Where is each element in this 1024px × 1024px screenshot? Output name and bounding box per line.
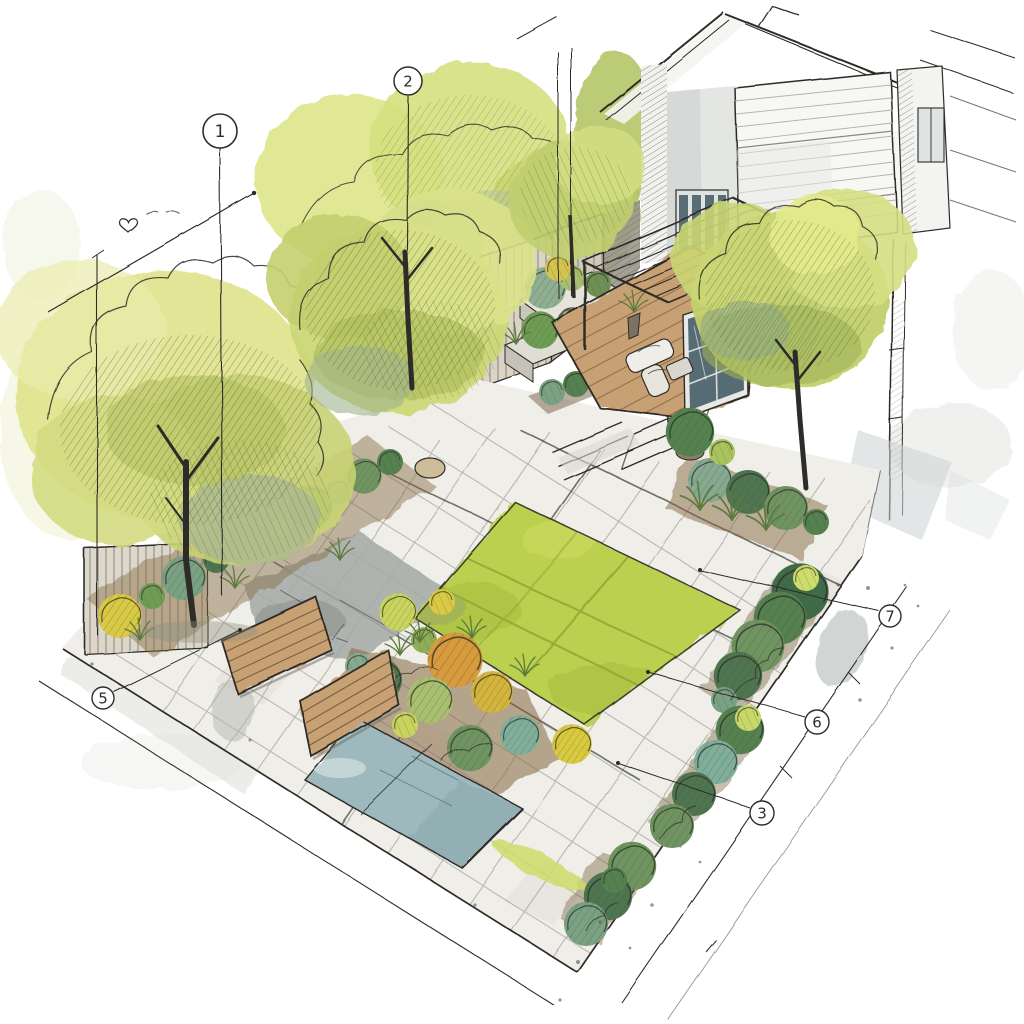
shrub xyxy=(471,671,513,713)
planter-urn xyxy=(628,313,640,339)
shrub xyxy=(709,439,735,465)
callout-3: 3 xyxy=(750,801,774,825)
shrub xyxy=(392,712,418,738)
callout-5: 5 xyxy=(92,687,114,709)
shrub xyxy=(500,715,540,755)
callout-6: 6 xyxy=(805,710,829,734)
sketch-page: 1 2 7 6 3 5 xyxy=(0,0,1024,1024)
shrub xyxy=(429,589,455,615)
shrub xyxy=(98,594,142,638)
callout-label: 3 xyxy=(757,805,767,823)
callout-label: 6 xyxy=(812,714,822,732)
callout-7: 7 xyxy=(879,605,901,627)
callout-label: 2 xyxy=(403,73,413,91)
stone-boulder xyxy=(415,458,445,478)
shrub xyxy=(377,449,403,475)
garden-sketch-canvas: 1 2 7 6 3 5 xyxy=(0,0,1024,1024)
callout-1: 1 xyxy=(203,114,237,148)
callout-2: 2 xyxy=(394,67,422,95)
shrub xyxy=(139,583,165,609)
callout-label: 5 xyxy=(98,690,108,708)
callout-label: 1 xyxy=(215,122,226,142)
shrub xyxy=(803,509,829,535)
callout-label: 7 xyxy=(885,608,895,626)
shrub xyxy=(726,470,770,514)
shrub xyxy=(552,724,592,764)
